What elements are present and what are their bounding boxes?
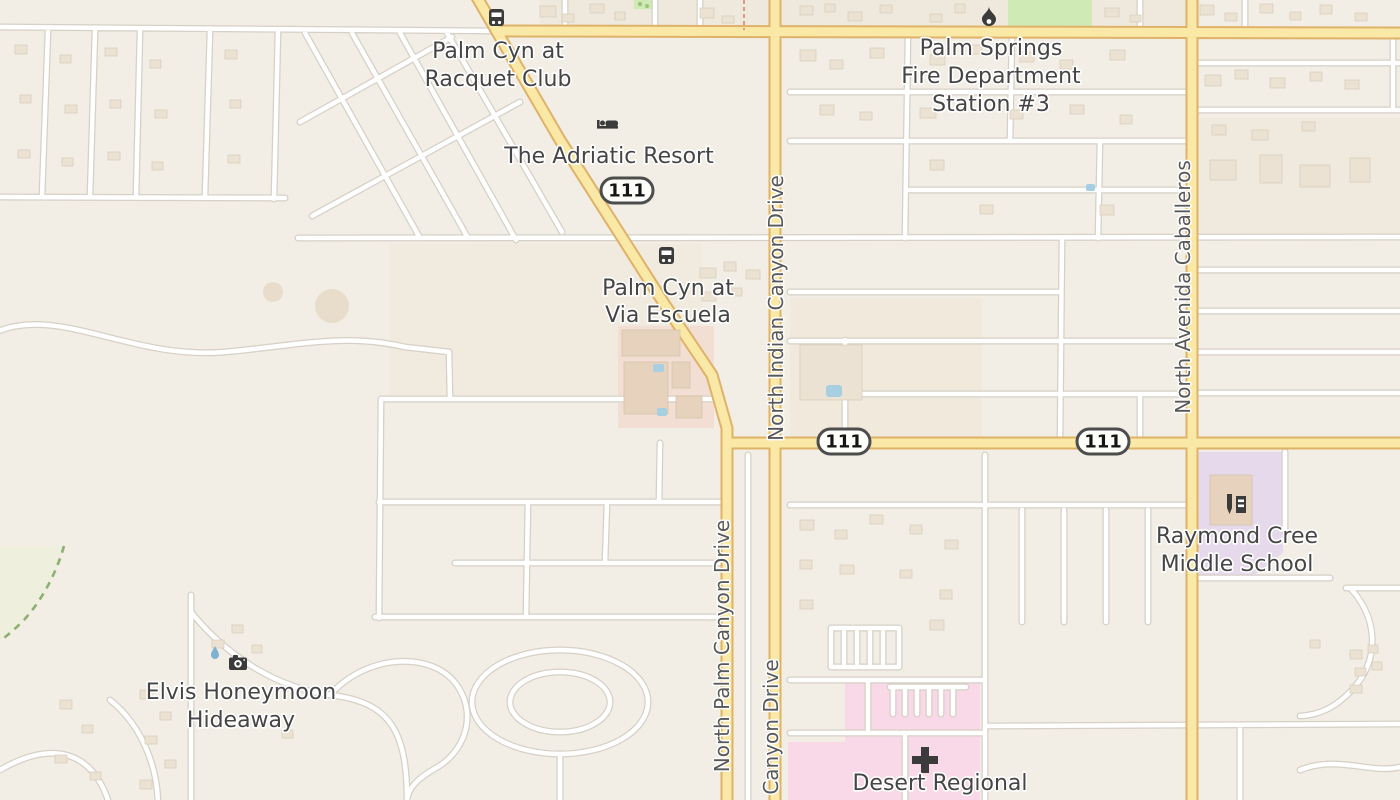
poi-label-racquet-club-line2: Racquet Club (425, 67, 572, 92)
route-shield-ref: 111 (825, 432, 863, 453)
bus-icon[interactable] (489, 9, 504, 26)
route-shield-111-west: 111 (818, 429, 870, 454)
route-shield-ref: 111 (608, 181, 646, 202)
poi-label-elvis-line2: Hideaway (187, 708, 295, 733)
poi-label-middle-school-line1: Raymond Cree (1156, 524, 1318, 549)
poi-label-elvis-line1: Elvis Honeymoon (146, 680, 336, 705)
school-icon[interactable] (1227, 494, 1246, 514)
street-label-indian-canyon: North Indian Canyon Drive (764, 175, 788, 441)
poi-label-fire-station-line3: Station #3 (932, 92, 1050, 117)
poi-label-via-escuela-line2: Via Escuela (605, 303, 731, 328)
map-canvas[interactable]: 111 111 111 (0, 0, 1400, 800)
street-label-palm-canyon: North Palm Canyon Drive (710, 520, 734, 772)
poi-label-adriatic-resort: The Adriatic Resort (503, 144, 714, 169)
bus-icon[interactable] (659, 247, 674, 264)
poi-label-racquet-club-line1: Palm Cyn at (432, 39, 564, 64)
poi-label-middle-school-line2: Middle School (1161, 552, 1314, 577)
street-label-indian-canyon-south: Canyon Drive (759, 659, 783, 794)
poi-label-hospital: Desert Regional (852, 771, 1027, 796)
poi-label-via-escuela-line1: Palm Cyn at (602, 276, 734, 301)
poi-label-fire-station-line2: Fire Department (901, 64, 1081, 89)
route-shield-111-north: 111 (601, 178, 653, 203)
poi-label-fire-station-line1: Palm Springs (920, 36, 1063, 61)
route-shield-111-east: 111 (1077, 429, 1129, 454)
street-label-caballeros: North Avenida Caballeros (1171, 160, 1195, 414)
route-shield-ref: 111 (1084, 432, 1122, 453)
map-viewport[interactable]: 111 111 111 (0, 0, 1400, 800)
